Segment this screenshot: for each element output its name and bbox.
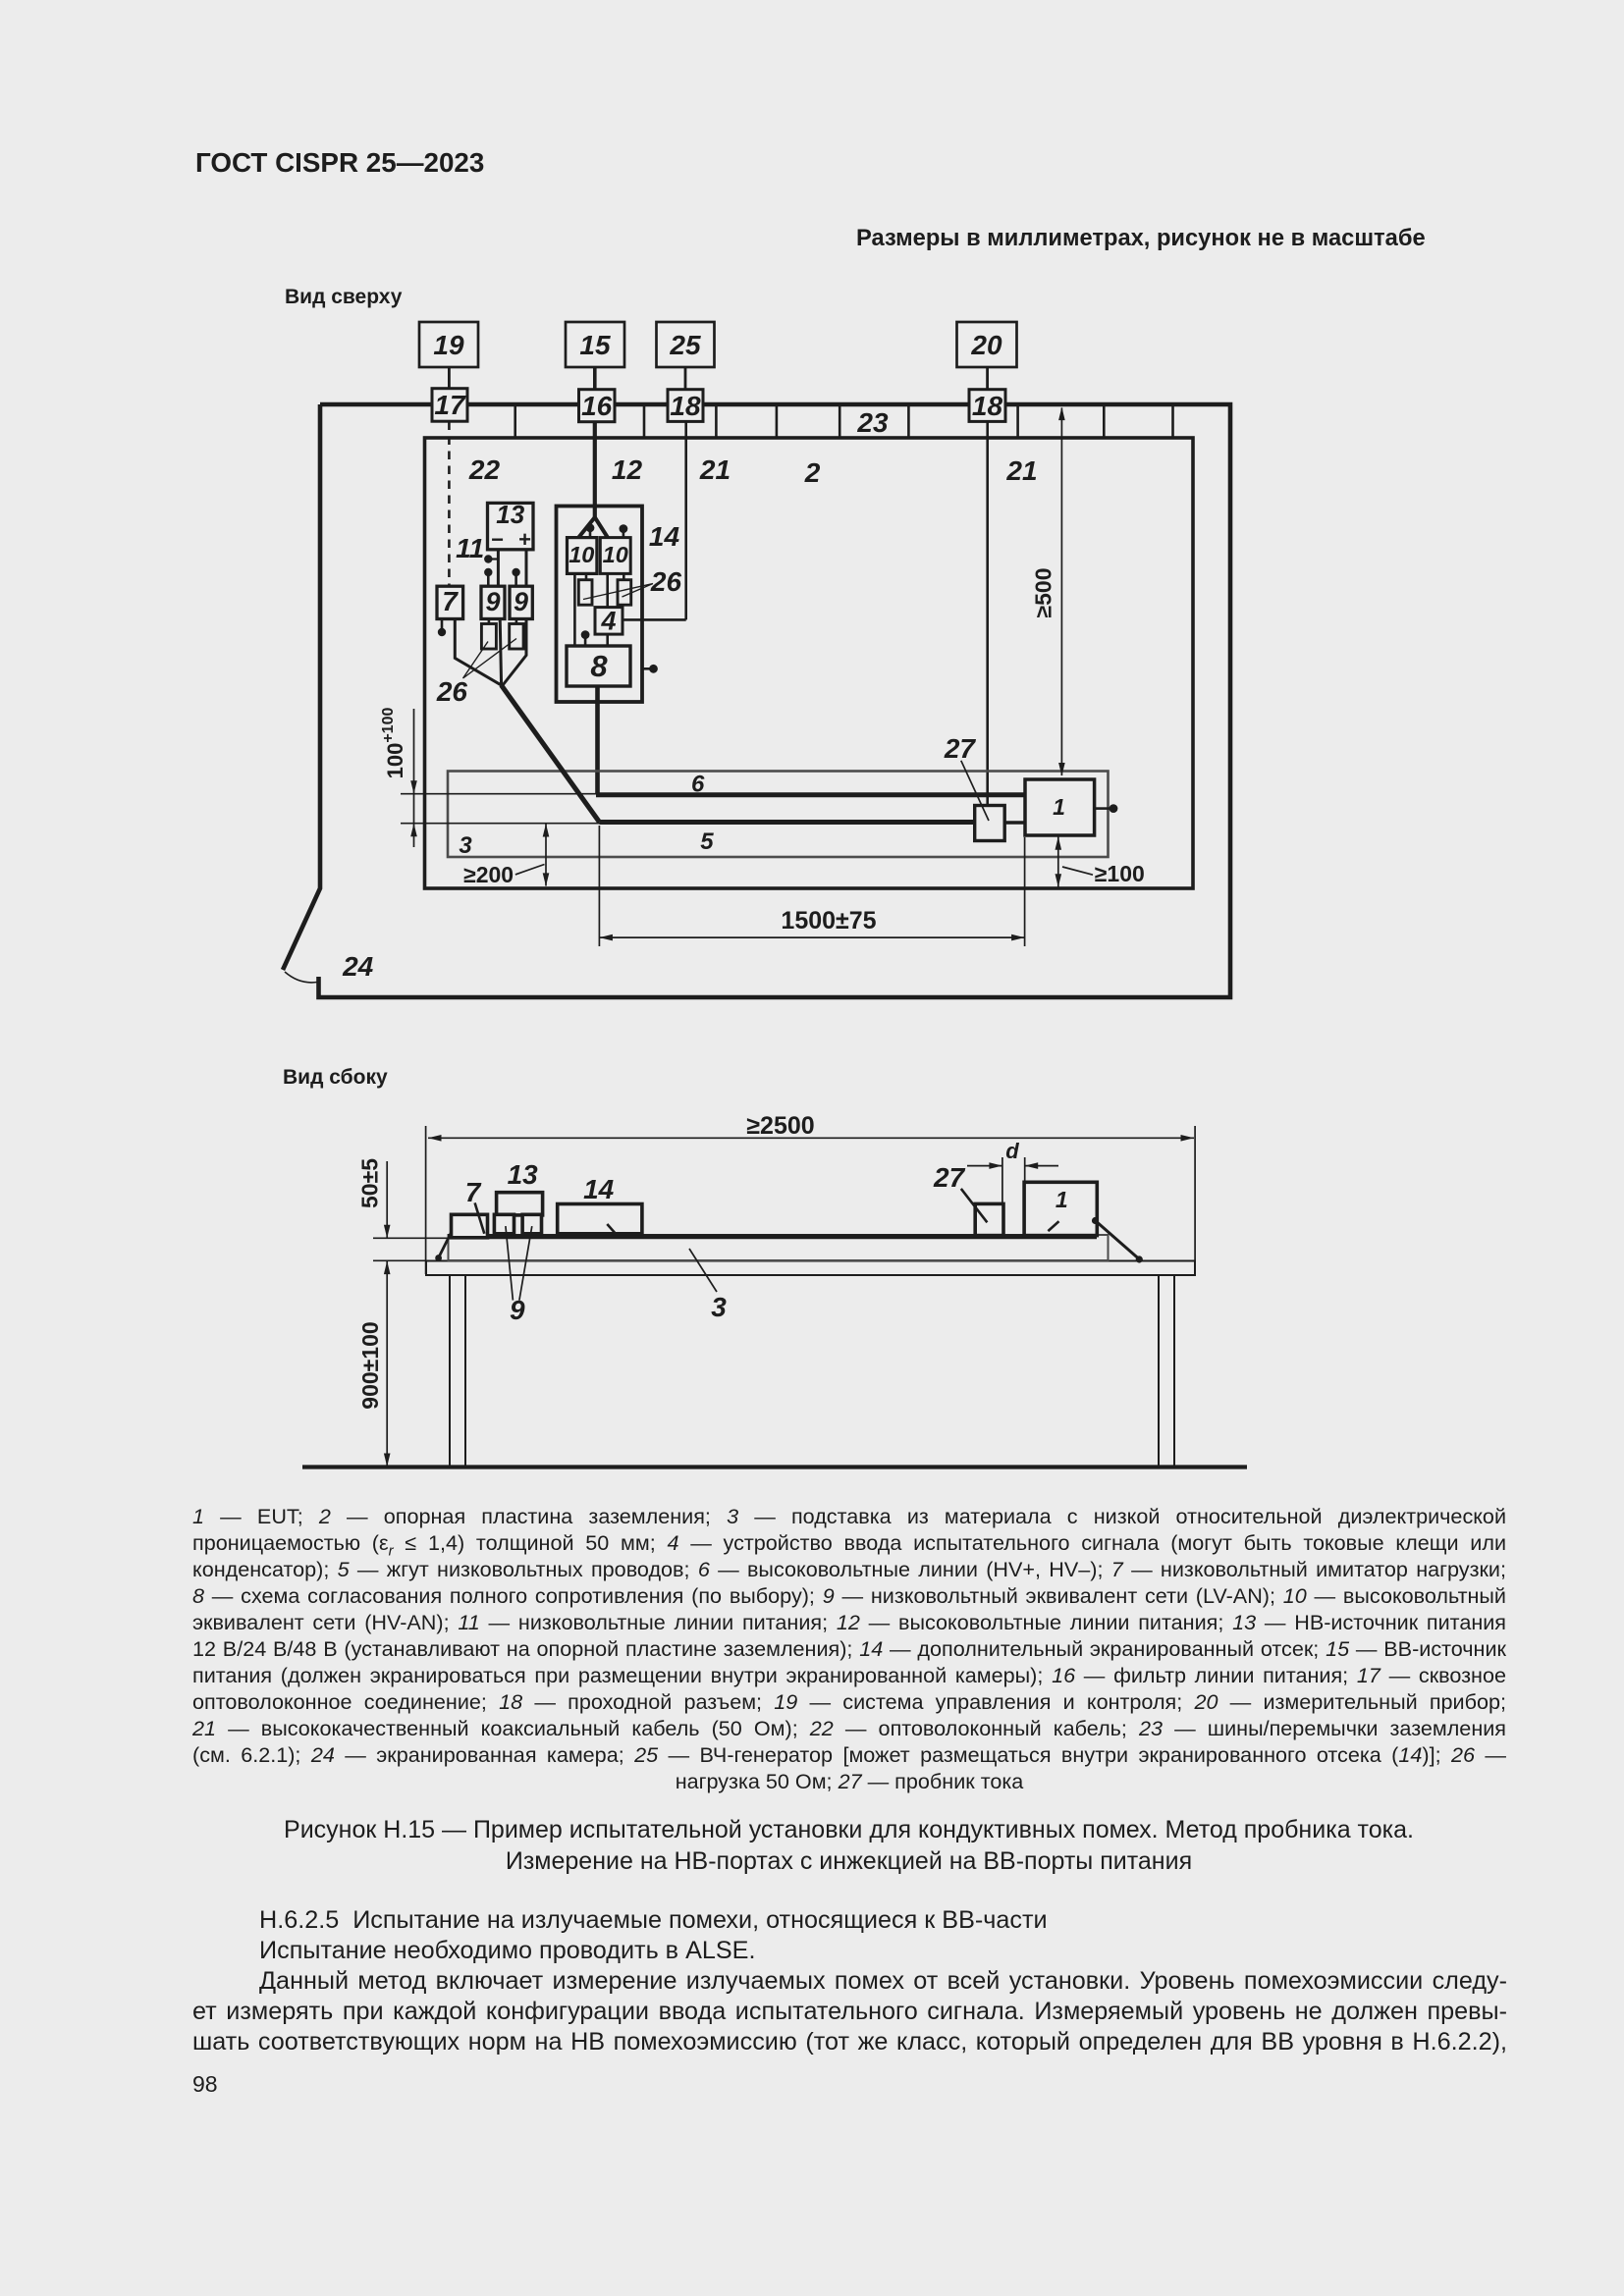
svg-text:≥500: ≥500 bbox=[1031, 568, 1056, 618]
svg-text:≥200: ≥200 bbox=[463, 862, 514, 887]
svg-text:12: 12 bbox=[612, 454, 643, 485]
svg-text:10: 10 bbox=[603, 542, 628, 567]
svg-text:26: 26 bbox=[436, 676, 468, 707]
svg-text:21: 21 bbox=[699, 454, 731, 485]
svg-text:20: 20 bbox=[970, 330, 1002, 360]
svg-text:3: 3 bbox=[459, 832, 472, 859]
svg-text:18: 18 bbox=[972, 391, 1003, 421]
svg-text:9: 9 bbox=[510, 1295, 525, 1325]
svg-text:900±100: 900±100 bbox=[357, 1321, 383, 1409]
svg-text:1500±75: 1500±75 bbox=[781, 907, 876, 934]
svg-text:5: 5 bbox=[700, 828, 714, 855]
svg-text:27: 27 bbox=[933, 1162, 966, 1193]
svg-text:10: 10 bbox=[568, 542, 594, 567]
svg-text:13: 13 bbox=[496, 500, 524, 529]
svg-text:8: 8 bbox=[590, 649, 608, 683]
svg-text:26: 26 bbox=[650, 566, 682, 597]
svg-text:50±5: 50±5 bbox=[357, 1158, 383, 1208]
svg-text:13: 13 bbox=[508, 1159, 539, 1190]
svg-text:6: 6 bbox=[691, 772, 705, 798]
svg-text:1: 1 bbox=[1053, 794, 1065, 820]
svg-text:+: + bbox=[518, 527, 531, 552]
svg-text:18: 18 bbox=[670, 391, 701, 421]
svg-text:19: 19 bbox=[433, 330, 464, 360]
svg-text:15: 15 bbox=[579, 330, 611, 360]
svg-text:7: 7 bbox=[465, 1177, 482, 1207]
svg-text:−: − bbox=[491, 527, 504, 552]
svg-text:9: 9 bbox=[485, 587, 500, 616]
svg-text:d: d bbox=[1005, 1139, 1019, 1163]
svg-text:≥2500: ≥2500 bbox=[746, 1112, 814, 1140]
svg-text:17: 17 bbox=[434, 390, 466, 420]
svg-text:14: 14 bbox=[583, 1174, 615, 1204]
svg-text:16: 16 bbox=[581, 391, 613, 421]
svg-text:1: 1 bbox=[1056, 1187, 1068, 1212]
svg-text:22: 22 bbox=[468, 454, 501, 485]
svg-text:25: 25 bbox=[669, 330, 701, 360]
svg-text:7: 7 bbox=[442, 586, 459, 616]
svg-text:21: 21 bbox=[1005, 455, 1037, 486]
svg-text:3: 3 bbox=[711, 1292, 727, 1322]
svg-text:2: 2 bbox=[804, 457, 821, 488]
svg-text:23: 23 bbox=[856, 407, 889, 438]
svg-text:9: 9 bbox=[514, 587, 528, 616]
svg-text:14: 14 bbox=[649, 521, 680, 552]
svg-text:24: 24 bbox=[342, 951, 374, 982]
svg-text:27: 27 bbox=[944, 733, 977, 764]
svg-text:100+100: 100+100 bbox=[380, 708, 407, 779]
svg-text:≥100: ≥100 bbox=[1095, 861, 1145, 886]
svg-text:4: 4 bbox=[600, 607, 616, 636]
svg-text:11: 11 bbox=[456, 533, 484, 563]
